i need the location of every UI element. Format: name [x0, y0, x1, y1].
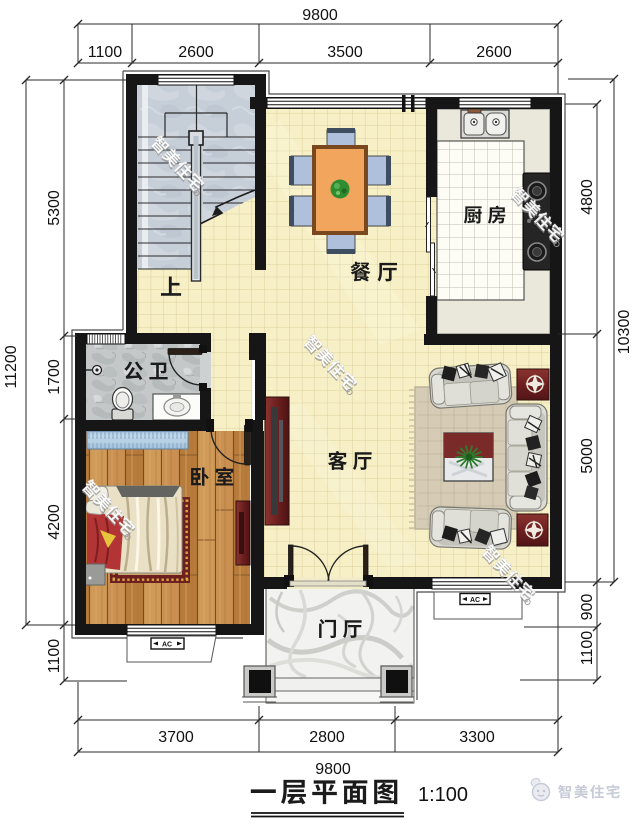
svg-text:4800: 4800: [579, 179, 596, 215]
svg-text:4200: 4200: [46, 504, 63, 540]
svg-text:9800: 9800: [302, 7, 338, 24]
svg-text:10300: 10300: [616, 310, 633, 355]
svg-text:3300: 3300: [459, 729, 495, 746]
svg-text:2800: 2800: [309, 729, 345, 746]
svg-text:AC: AC: [470, 597, 480, 604]
svg-text:900: 900: [579, 594, 596, 621]
svg-text:3700: 3700: [158, 729, 194, 746]
svg-text:9800: 9800: [315, 761, 351, 778]
svg-text:3500: 3500: [327, 44, 363, 61]
svg-text:1700: 1700: [46, 359, 63, 395]
svg-text:2600: 2600: [178, 44, 214, 61]
svg-text:1100: 1100: [46, 639, 63, 674]
svg-text:1100: 1100: [579, 631, 596, 666]
svg-text:11200: 11200: [3, 345, 20, 388]
svg-text:1100: 1100: [88, 44, 123, 61]
svg-text:5000: 5000: [579, 438, 596, 474]
svg-text:5300: 5300: [46, 190, 63, 226]
svg-text:AC: AC: [162, 642, 172, 649]
svg-text:1:100: 1:100: [418, 784, 468, 806]
svg-text:2600: 2600: [476, 44, 512, 61]
